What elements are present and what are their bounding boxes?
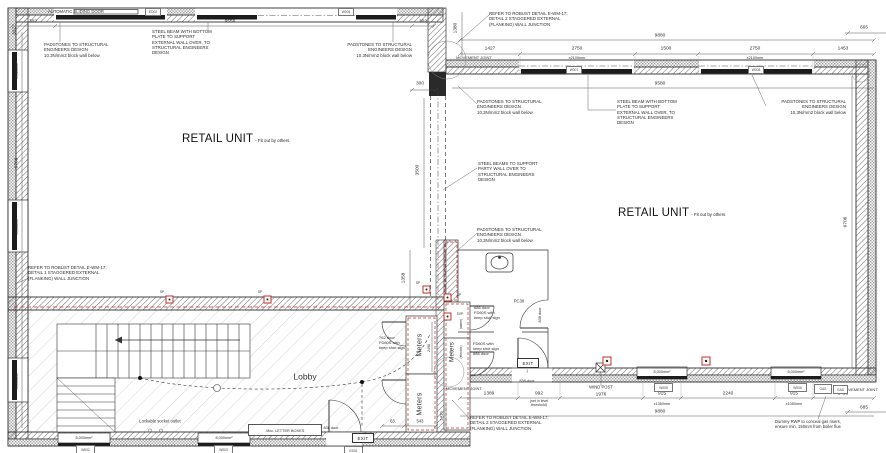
dim-665: 665 — [860, 25, 868, 30]
meters-electric: (electric) — [459, 346, 463, 359]
dim-9556: 9556 — [225, 19, 236, 24]
dim-915-a: 915 — [658, 391, 666, 396]
movement-joint-top: MOVEMENT JOINT — [456, 56, 492, 60]
padstones-note-topmid: PADSTONES TO STRUCTURAL ENGINEERS DESIGN… — [328, 42, 412, 58]
dim-63: 63. — [390, 420, 396, 425]
window-area-label: 8,000mm² — [15, 371, 19, 388]
dim-6768: 6768 — [15, 158, 20, 169]
exit-sign-right: EXIT — [517, 358, 539, 368]
tag-w005: W005 — [654, 383, 673, 392]
gas-box-b: GAS — [833, 385, 848, 394]
door-838-wc: 838 door — [538, 308, 542, 323]
lockable-socket-note: Lockable socket outlet — [139, 420, 180, 425]
window-area-label: 8,000mm² — [75, 436, 92, 440]
door-762-note: 762 door FD60S with keep shut sign — [379, 336, 405, 350]
automatic-sliding-door-label: AUTOMATIC SLIDING DOOR — [48, 9, 104, 14]
dim-302-left: 302 — [29, 19, 37, 24]
steel-beam-note-left: STEEL BEAM WITH BOTTOM PLATE TO SUPPORT … — [152, 29, 212, 55]
dim-1389: 1389 — [484, 391, 495, 396]
exit-arrow-lobby: ↓ — [361, 444, 364, 451]
set-in-level-note: (set in level threshold) — [530, 400, 548, 408]
sp-label: SP — [457, 294, 461, 298]
window-area-label: 8,000mm² — [215, 436, 232, 440]
tag-w006: W006 — [788, 383, 807, 392]
tag-w004: W004 — [338, 8, 354, 16]
dim-3500: 3500 — [416, 165, 421, 176]
dim-x2100-a: x2100mm — [569, 56, 586, 60]
robust-detail-1-note: REFER TO ROBUST DETAIL E-WM-17; DETAIL 1… — [28, 265, 107, 281]
robust-detail-2-bottom: REFER TO ROBUST DETAIL E-WM-17; DETAIL 2… — [470, 415, 549, 431]
dim-1453-top: 1453 — [838, 46, 849, 51]
tag-w008: W008 — [748, 66, 764, 74]
dim-2240: 2240 — [723, 391, 734, 396]
window-area-label: 8,000mm² — [653, 370, 670, 374]
movement-joint-bottom: MOVEMENT JOINT — [446, 387, 482, 391]
sp-label: SP — [258, 291, 262, 295]
dim-1976: 1976 — [596, 392, 607, 397]
padstones-note-topleft: PADSTONES TO STRUCTURAL ENGINEERS DESIGN… — [44, 42, 109, 58]
letter-boxes: 4No. LETTER BOXES — [248, 424, 322, 436]
dim-1358: 1358 — [402, 273, 407, 284]
tag-w002: W002 — [76, 445, 95, 453]
padstones-note-right-a: PADSTONES TO STRUCTURAL ENGINEERS DESIGN… — [477, 99, 542, 115]
exit-sign-lobby: EXIT — [352, 433, 374, 443]
meters-water: (water) — [459, 319, 463, 330]
retail-unit-left-title: RETAIL UNIT - Fit out by others — [182, 133, 289, 145]
dim-1410: 1410 — [439, 412, 444, 421]
meters-room-right: Meters — [449, 342, 456, 362]
sp-label: SP — [416, 282, 420, 286]
gas-box-a: GAS — [814, 384, 832, 394]
dim-992: 992 — [535, 391, 543, 396]
steel-beams-party-note: STEEL BEAMS TO SUPPORT PARTY WALL OVER T… — [478, 161, 538, 182]
dummy-rwp-note: Dummy RWP to conceal gas risers, ensure … — [775, 419, 841, 429]
dim-9880-top: 9880 — [655, 33, 666, 38]
dim-9880-bottom: 9880 — [655, 409, 666, 414]
tag-ed02: ED02 — [145, 8, 161, 16]
floor-plan: AUTOMATIC SLIDING DOOR 302 302 9556 302 … — [0, 0, 886, 453]
robust-detail-2-top: REFER TO ROBUST DETAIL E-WM-17; DETAIL 2… — [489, 11, 568, 27]
door-838-right: 838-door — [519, 379, 534, 383]
dim-302-vert: 302 — [13, 27, 18, 35]
dim-300: 300 — [416, 81, 424, 86]
retail-unit-name: RETAIL UNIT — [182, 133, 253, 145]
pc30-label: PC30 — [514, 300, 524, 305]
steel-beam-note-right: STEEL BEAM WITH BOTTOM PLATE TO SUPPORT … — [617, 99, 677, 125]
window-area-label: 8,000mm² — [15, 217, 19, 234]
tag-w003: W003 — [214, 445, 233, 453]
dim-543: 543 — [417, 420, 424, 425]
retail-unit-right-title: RETAIL UNIT - Fit out by others — [618, 207, 725, 219]
dim-2498: 2498 — [427, 344, 431, 352]
dim-2750-a: 2750 — [572, 46, 583, 51]
tag-w007: W007 — [566, 66, 582, 74]
dim-x1050: x1050mm — [786, 402, 803, 406]
door-838-lobby: 838 door — [324, 426, 339, 430]
dim-2750-b: 2750 — [750, 46, 761, 51]
retail-unit-name: RETAIL UNIT — [618, 207, 689, 219]
dim-1380: 1380 — [454, 23, 459, 34]
padstones-note-right-b: PADSTONES TO STRUCTURAL ENGINEERS DESIGN… — [760, 99, 846, 115]
dim-1427: 1427 — [485, 46, 496, 51]
lobby-title: Lobby — [293, 372, 316, 381]
wind-post-label: WIND POST — [589, 386, 613, 391]
dim-x2100-b: x2100mm — [747, 56, 764, 60]
window-area-label: 8,000mm² — [15, 61, 19, 78]
dim-915-b: 915 — [790, 391, 798, 396]
retail-unit-fitout: - Fit out by others — [255, 138, 289, 143]
window-area-label: 8,000mm² — [787, 370, 804, 374]
dim-x1350: x1350mm — [654, 402, 671, 406]
exit-arrow-right: ↓ — [526, 369, 529, 376]
dim-9580: 9580 — [655, 81, 666, 86]
dim-6706: 6706 — [844, 217, 849, 228]
retail-unit-fitout: - Fit out by others — [691, 212, 725, 217]
dim-1500: 1500 — [661, 46, 672, 51]
dim-685: 685 — [860, 405, 868, 410]
meters-wc-block — [406, 240, 548, 432]
meters-room-upper: Meters — [417, 333, 424, 356]
meters-room-lower: Meters — [417, 392, 424, 415]
door-686-a-note: 686 door FD60S with keep shut sign — [474, 306, 500, 320]
dim-302-right: 302 — [419, 19, 427, 24]
svp-label: SVP — [457, 313, 463, 317]
sp-label: SP — [160, 291, 164, 295]
padstones-note-wc: PADSTONES TO STRUCTURAL ENGINEERS DESIGN… — [477, 227, 542, 243]
door-686-b-note: FD60S with keep shut sign 686 door — [473, 342, 499, 356]
